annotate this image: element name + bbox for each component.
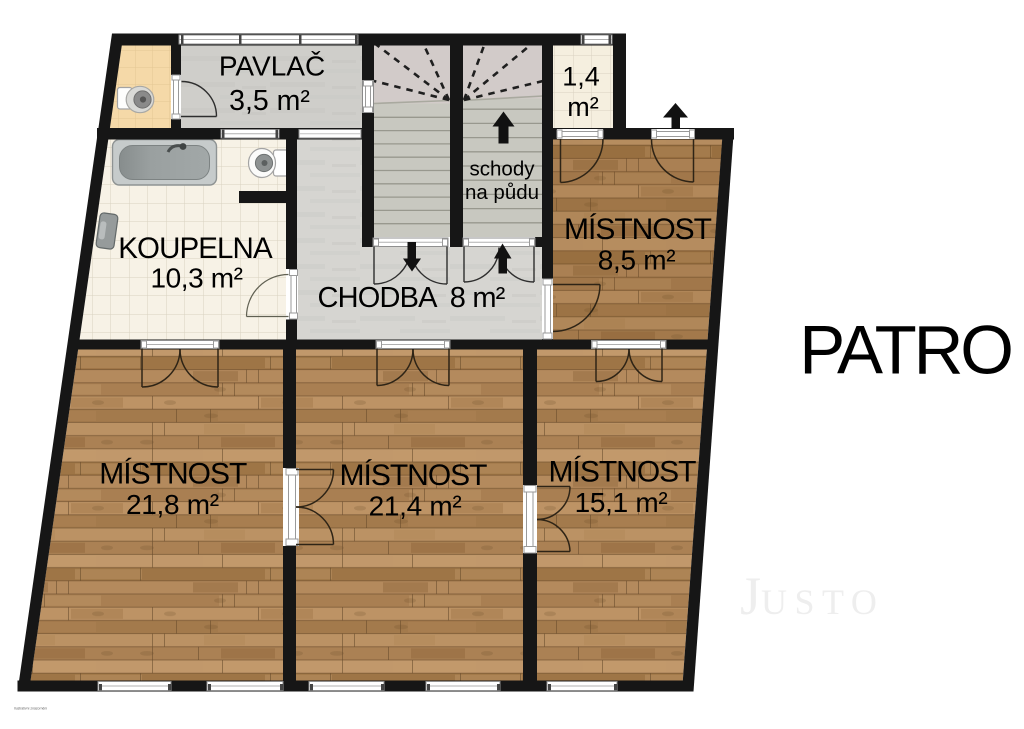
svg-text:3,5 m²: 3,5 m² <box>229 85 310 117</box>
svg-text:m²: m² <box>567 92 598 122</box>
svg-text:MÍSTNOST: MÍSTNOST <box>549 456 697 489</box>
svg-text:21,4 m²: 21,4 m² <box>369 491 462 522</box>
svg-text:PAVLAČ: PAVLAČ <box>219 51 325 82</box>
svg-text:PATRO: PATRO <box>799 312 1011 389</box>
svg-text:MÍSTNOST: MÍSTNOST <box>99 458 247 491</box>
svg-text:schody: schody <box>470 158 536 181</box>
svg-text:Ilustrativní znázornění: Ilustrativní znázornění <box>14 707 47 711</box>
svg-text:21,8 m²: 21,8 m² <box>126 489 219 520</box>
svg-text:15,1 m²: 15,1 m² <box>575 487 668 518</box>
svg-text:MÍSTNOST: MÍSTNOST <box>564 213 712 246</box>
svg-text:8,5 m²: 8,5 m² <box>598 245 676 276</box>
svg-text:CHODBA8 m²: CHODBA8 m² <box>317 282 505 314</box>
svg-text:na půdu: na půdu <box>465 181 539 204</box>
svg-text:1,4: 1,4 <box>562 62 600 92</box>
svg-text:10,3 m²: 10,3 m² <box>150 263 242 294</box>
svg-text:MÍSTNOST: MÍSTNOST <box>340 459 488 492</box>
svg-text:KOUPELNA: KOUPELNA <box>118 232 273 265</box>
